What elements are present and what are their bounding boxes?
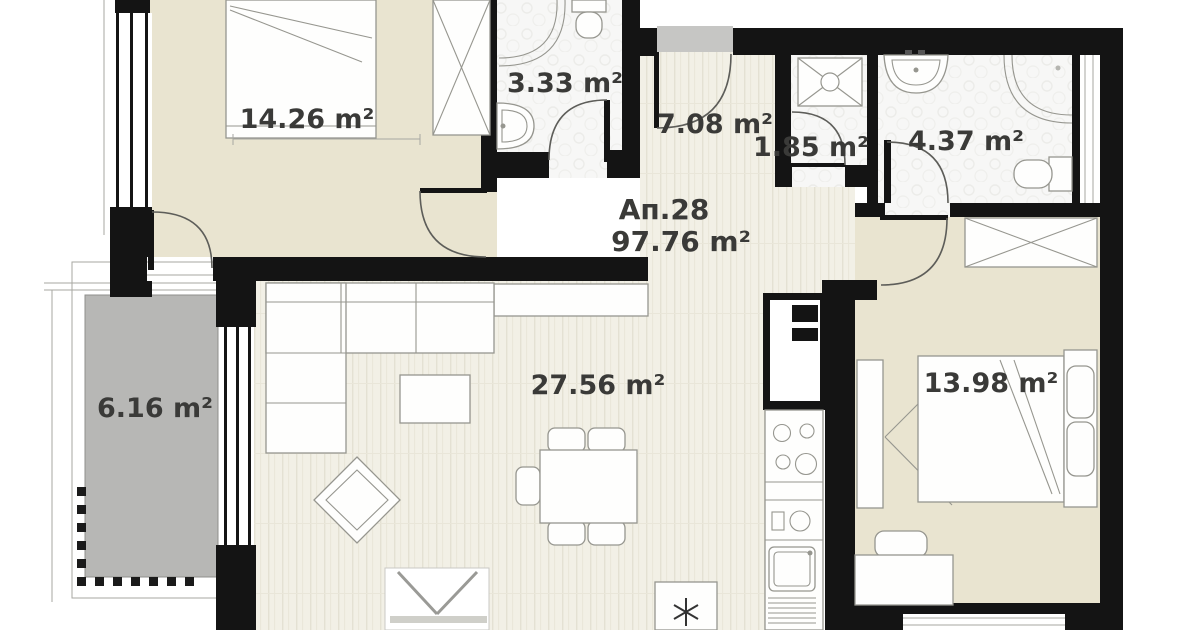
wardrobe-icon — [433, 0, 490, 135]
toilet-icon — [1014, 157, 1072, 191]
dining-chair-icon — [588, 521, 625, 545]
window-bedroom-2 — [903, 614, 1065, 630]
bedroom-2-area-label: 13.98 m² — [924, 368, 1059, 399]
dining-chair-icon — [588, 428, 625, 452]
window-balcony-door — [220, 327, 254, 545]
window-bedroom-1 — [112, 13, 152, 207]
floor-plan: 14.26 m² 3.33 m² 7.08 m² 1.85 m² 4.37 m²… — [0, 0, 1200, 630]
floor-plan-page: 14.26 m² 3.33 m² 7.08 m² 1.85 m² 4.37 m²… — [0, 0, 1200, 630]
dining-chair-icon — [548, 428, 585, 452]
bathroom-2-area-label: 4.37 m² — [908, 126, 1024, 157]
bedroom-1-door-threshold — [147, 257, 213, 281]
room-balcony-floor — [85, 295, 218, 577]
tv-icon — [385, 568, 489, 630]
wc-area-label: 1.85 m² — [753, 132, 869, 163]
bathroom-1-area-label: 3.33 m² — [507, 68, 623, 99]
sideboard-icon — [494, 284, 648, 316]
apartment-total-area-label: 97.76 m² — [611, 225, 751, 258]
dining-chair-icon — [516, 467, 540, 505]
living-area-label: 27.56 m² — [531, 370, 666, 401]
installation-shaft — [763, 293, 827, 410]
kitchen-counter — [765, 410, 823, 630]
room-wc — [798, 58, 862, 106]
balcony-area-label: 6.16 m² — [97, 393, 213, 424]
toilet-icon — [572, 0, 606, 38]
dining-chair-icon — [548, 521, 585, 545]
window-bathroom-2 — [1080, 55, 1100, 203]
fridge-icon — [655, 582, 717, 630]
coffee-table-icon — [400, 375, 470, 423]
shower-cabin-icon — [798, 58, 862, 106]
desk-chair-icon — [875, 531, 927, 557]
tv-stand-icon — [390, 616, 487, 623]
entrance-landing — [657, 26, 733, 52]
bedroom-1-area-label: 14.26 m² — [240, 104, 375, 135]
wardrobe-icon — [965, 218, 1097, 267]
apartment-number-label: Ап.28 — [619, 193, 710, 226]
